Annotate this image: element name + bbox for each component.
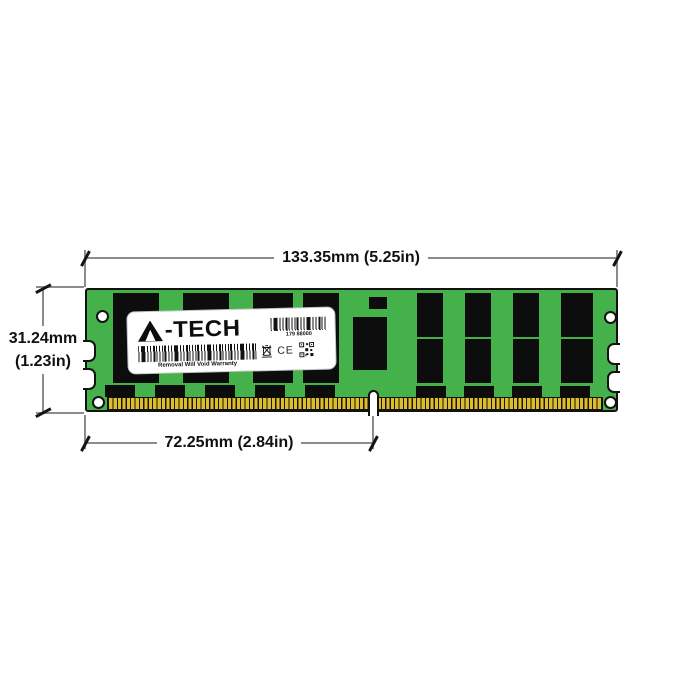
height-dimension-label-in: (1.23in) (9, 352, 78, 371)
label-code-row: CE (138, 341, 329, 363)
pin-offset-dimension: 72.25mm (2.84in) (85, 434, 373, 452)
serial-block: 179 88000 (270, 317, 326, 338)
memory-chip (369, 297, 387, 309)
memory-chip (155, 385, 185, 397)
key-notch (368, 390, 379, 416)
right-edge-notch (607, 343, 620, 365)
dimension-line (301, 442, 373, 444)
gold-edge-pins (107, 397, 603, 410)
height-dimension: 31.24mm (1.23in) (3, 287, 83, 413)
mounting-hole (604, 311, 617, 324)
memory-chip (561, 339, 593, 383)
memory-chip (205, 385, 235, 397)
weee-crossed-bin-icon (261, 344, 272, 358)
memory-chip (465, 339, 491, 383)
dimension-line (85, 257, 274, 259)
brand-text: -TECH (165, 319, 241, 340)
memory-chip (416, 386, 446, 397)
memory-module: -TECH 179 88000 (85, 288, 618, 412)
memory-chip (560, 386, 590, 397)
product-dimension-diagram: -TECH 179 88000 (0, 0, 700, 700)
height-dimension-label-mm: 31.24mm (9, 329, 78, 348)
dimension-line (85, 442, 157, 444)
memory-chip (561, 293, 593, 337)
memory-chip (464, 386, 494, 397)
dimension-line (42, 374, 44, 413)
mounting-hole (96, 310, 109, 323)
right-edge-notch (607, 371, 620, 393)
label-logo-row: -TECH 179 88000 (137, 314, 327, 345)
memory-chip (105, 385, 135, 397)
memory-chip (417, 293, 443, 337)
triangle-a-logo-icon (137, 320, 163, 342)
barcode-icon (138, 343, 256, 362)
left-edge-notch (83, 368, 96, 390)
left-edge-notch (83, 340, 96, 362)
part-number: 179 88000 (271, 331, 327, 338)
width-dimension-label: 133.35mm (5.25in) (274, 249, 428, 267)
dimension-line (42, 287, 44, 326)
memory-chip (512, 386, 542, 397)
memory-chip (255, 385, 285, 397)
width-dimension: 133.35mm (5.25in) (85, 249, 617, 267)
a-tech-logo: -TECH (137, 318, 240, 342)
memory-chip (513, 293, 539, 337)
memory-chip (305, 385, 335, 397)
memory-chip (513, 339, 539, 383)
mounting-hole (92, 396, 105, 409)
memory-chip (417, 339, 443, 383)
dimension-line (428, 257, 617, 259)
qr-code-icon (299, 342, 314, 357)
pin-offset-dimension-label: 72.25mm (2.84in) (157, 434, 302, 452)
memory-chip (465, 293, 491, 337)
memory-chip (353, 317, 387, 370)
ce-mark: CE (277, 344, 294, 356)
mounting-hole (604, 396, 617, 409)
a-tech-label: -TECH 179 88000 (126, 306, 336, 374)
barcode-icon (270, 317, 326, 331)
